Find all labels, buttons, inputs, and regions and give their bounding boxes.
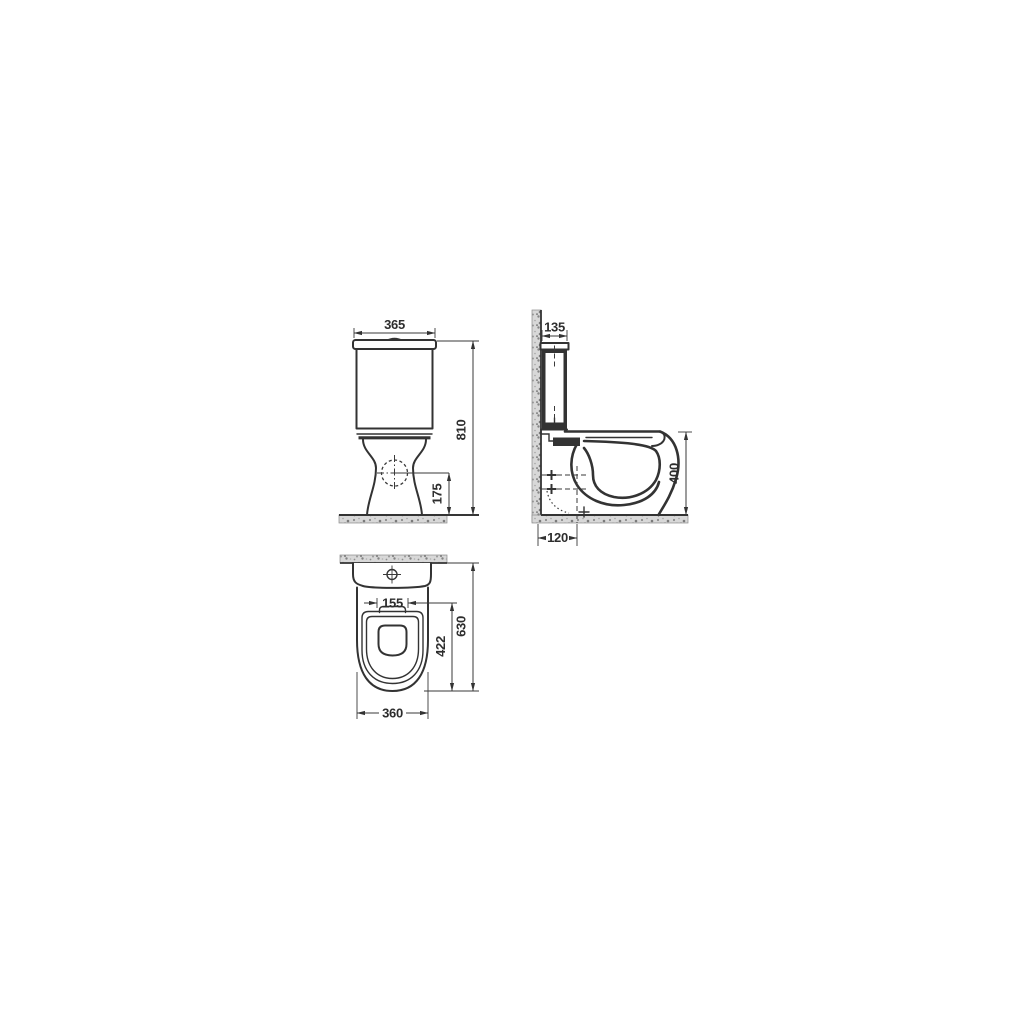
floor-hatch-front (339, 515, 479, 523)
dim-label-outlet-height: 175 (430, 484, 445, 505)
bowl-section (541, 430, 678, 518)
dim-cistern-depth: 135 (542, 320, 567, 342)
wall-hatch-side (532, 310, 541, 522)
cistern-section (541, 343, 569, 430)
dim-label-seat-cutout: 422 (433, 636, 448, 657)
front-view: 365 810 175 (339, 317, 479, 523)
technical-drawing: 365 810 175 (0, 0, 1024, 1024)
cistern-front (357, 349, 433, 429)
drawing-canvas: 365 810 175 (0, 0, 1024, 1024)
seat-outer-ring (362, 612, 423, 684)
dim-label-front-height: 810 (454, 420, 469, 441)
dim-label-front-width: 365 (384, 317, 405, 332)
dim-label-hinge-centers: 155 (382, 596, 403, 611)
outlet-axis-cross-upper (547, 470, 557, 480)
dim-seat-cutout: 422 (433, 603, 452, 691)
dim-label-outlet-setout: 120 (547, 530, 568, 545)
cistern-lid-front (353, 340, 436, 349)
side-view: 135 400 120 (532, 310, 692, 546)
dim-outlet-setout: 120 (538, 524, 577, 546)
floor-hatch-side (532, 515, 688, 523)
dim-label-overall-depth: 630 (454, 616, 469, 637)
dim-rim-height: 400 (667, 432, 693, 515)
dim-label-cistern-depth: 135 (544, 320, 565, 335)
dim-label-pan-width: 360 (382, 706, 403, 721)
dim-front-width: 365 (354, 317, 435, 338)
dim-label-rim-height: 400 (667, 463, 682, 484)
plan-view: 155 630 422 360 (340, 555, 479, 721)
lid-button-front (386, 338, 403, 340)
wall-hatch-plan (340, 555, 447, 563)
pedestal-front (363, 440, 426, 516)
outlet-axis-cross-lower (547, 484, 557, 494)
bowl-basin (584, 441, 660, 498)
